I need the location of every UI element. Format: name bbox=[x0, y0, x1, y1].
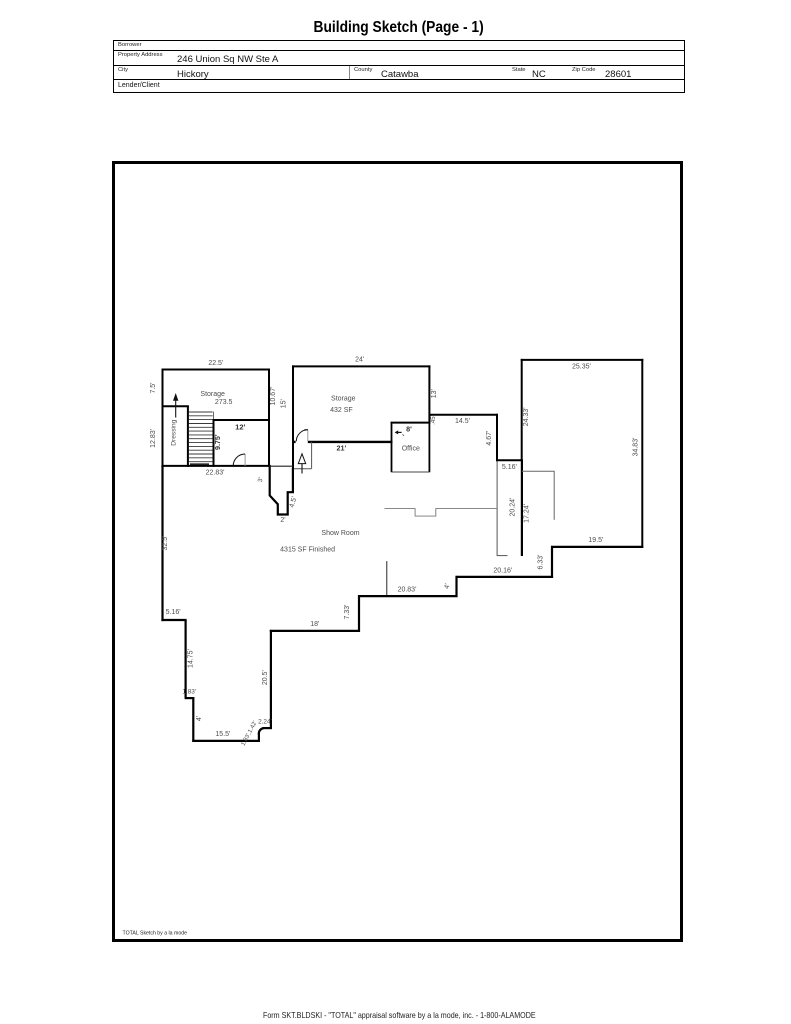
svg-text:4.5': 4.5' bbox=[289, 496, 299, 509]
svg-text:21': 21' bbox=[337, 443, 347, 452]
svg-text:14.5': 14.5' bbox=[455, 418, 470, 425]
svg-text:18': 18' bbox=[310, 621, 319, 628]
svg-text:20.16': 20.16' bbox=[493, 568, 512, 575]
svg-text:14.75': 14.75' bbox=[188, 649, 195, 668]
svg-text:6.33': 6.33' bbox=[537, 555, 544, 570]
svg-text:17.24': 17.24' bbox=[523, 504, 530, 523]
svg-text:Storage: Storage bbox=[200, 391, 225, 398]
svg-text:273.5: 273.5 bbox=[215, 399, 233, 406]
svg-text:7.5': 7.5' bbox=[150, 382, 157, 393]
svg-text:22.83': 22.83' bbox=[206, 470, 225, 477]
svg-text:19.5': 19.5' bbox=[588, 537, 603, 544]
svg-text:Dressing: Dressing bbox=[170, 419, 177, 445]
svg-text:5.16': 5.16' bbox=[502, 464, 517, 471]
svg-text:25.35': 25.35' bbox=[572, 363, 591, 370]
svg-text:Office: Office bbox=[402, 445, 420, 452]
svg-text:15.5': 15.5' bbox=[215, 731, 230, 738]
svg-text:7.33': 7.33' bbox=[344, 605, 351, 620]
svg-text:4': 4' bbox=[443, 583, 451, 590]
svg-text:4.67': 4.67' bbox=[486, 431, 493, 446]
svg-text:13': 13' bbox=[431, 389, 438, 398]
svg-text:2': 2' bbox=[280, 517, 285, 524]
svg-text:9.75': 9.75' bbox=[213, 434, 222, 450]
svg-text:24.33': 24.33' bbox=[523, 407, 530, 426]
svg-text:3': 3' bbox=[257, 477, 265, 483]
svg-text:1.83': 1.83' bbox=[182, 689, 196, 696]
svg-text:10.67': 10.67' bbox=[270, 387, 277, 406]
svg-text:Storage: Storage bbox=[331, 395, 356, 402]
svg-text:20.24': 20.24' bbox=[510, 498, 517, 517]
svg-text:24': 24' bbox=[355, 357, 364, 364]
svg-text:4315 SF Finished: 4315 SF Finished bbox=[280, 546, 335, 553]
svg-text:1.83',1.42': 1.83',1.42' bbox=[241, 720, 259, 747]
svg-text:20.5': 20.5' bbox=[262, 670, 269, 685]
svg-text:32.5': 32.5' bbox=[162, 536, 169, 551]
svg-text:34.83': 34.83' bbox=[632, 438, 639, 457]
svg-text:.45': .45' bbox=[431, 415, 437, 425]
svg-text:Show Room: Show Room bbox=[321, 530, 359, 537]
svg-text:8': 8' bbox=[406, 425, 412, 434]
svg-text:4': 4' bbox=[196, 716, 203, 721]
svg-text:2.24': 2.24' bbox=[258, 719, 272, 726]
svg-text:12': 12' bbox=[235, 422, 245, 431]
svg-text:432 SF: 432 SF bbox=[330, 407, 353, 414]
svg-text:22.5': 22.5' bbox=[208, 360, 223, 367]
svg-text:20.83': 20.83' bbox=[398, 586, 417, 593]
svg-text:15': 15' bbox=[280, 399, 287, 408]
svg-text:TOTAL Sketch by a la mode: TOTAL Sketch by a la mode bbox=[123, 931, 188, 937]
svg-text:12.83': 12.83' bbox=[150, 429, 157, 448]
svg-text:5.16': 5.16' bbox=[166, 609, 181, 616]
